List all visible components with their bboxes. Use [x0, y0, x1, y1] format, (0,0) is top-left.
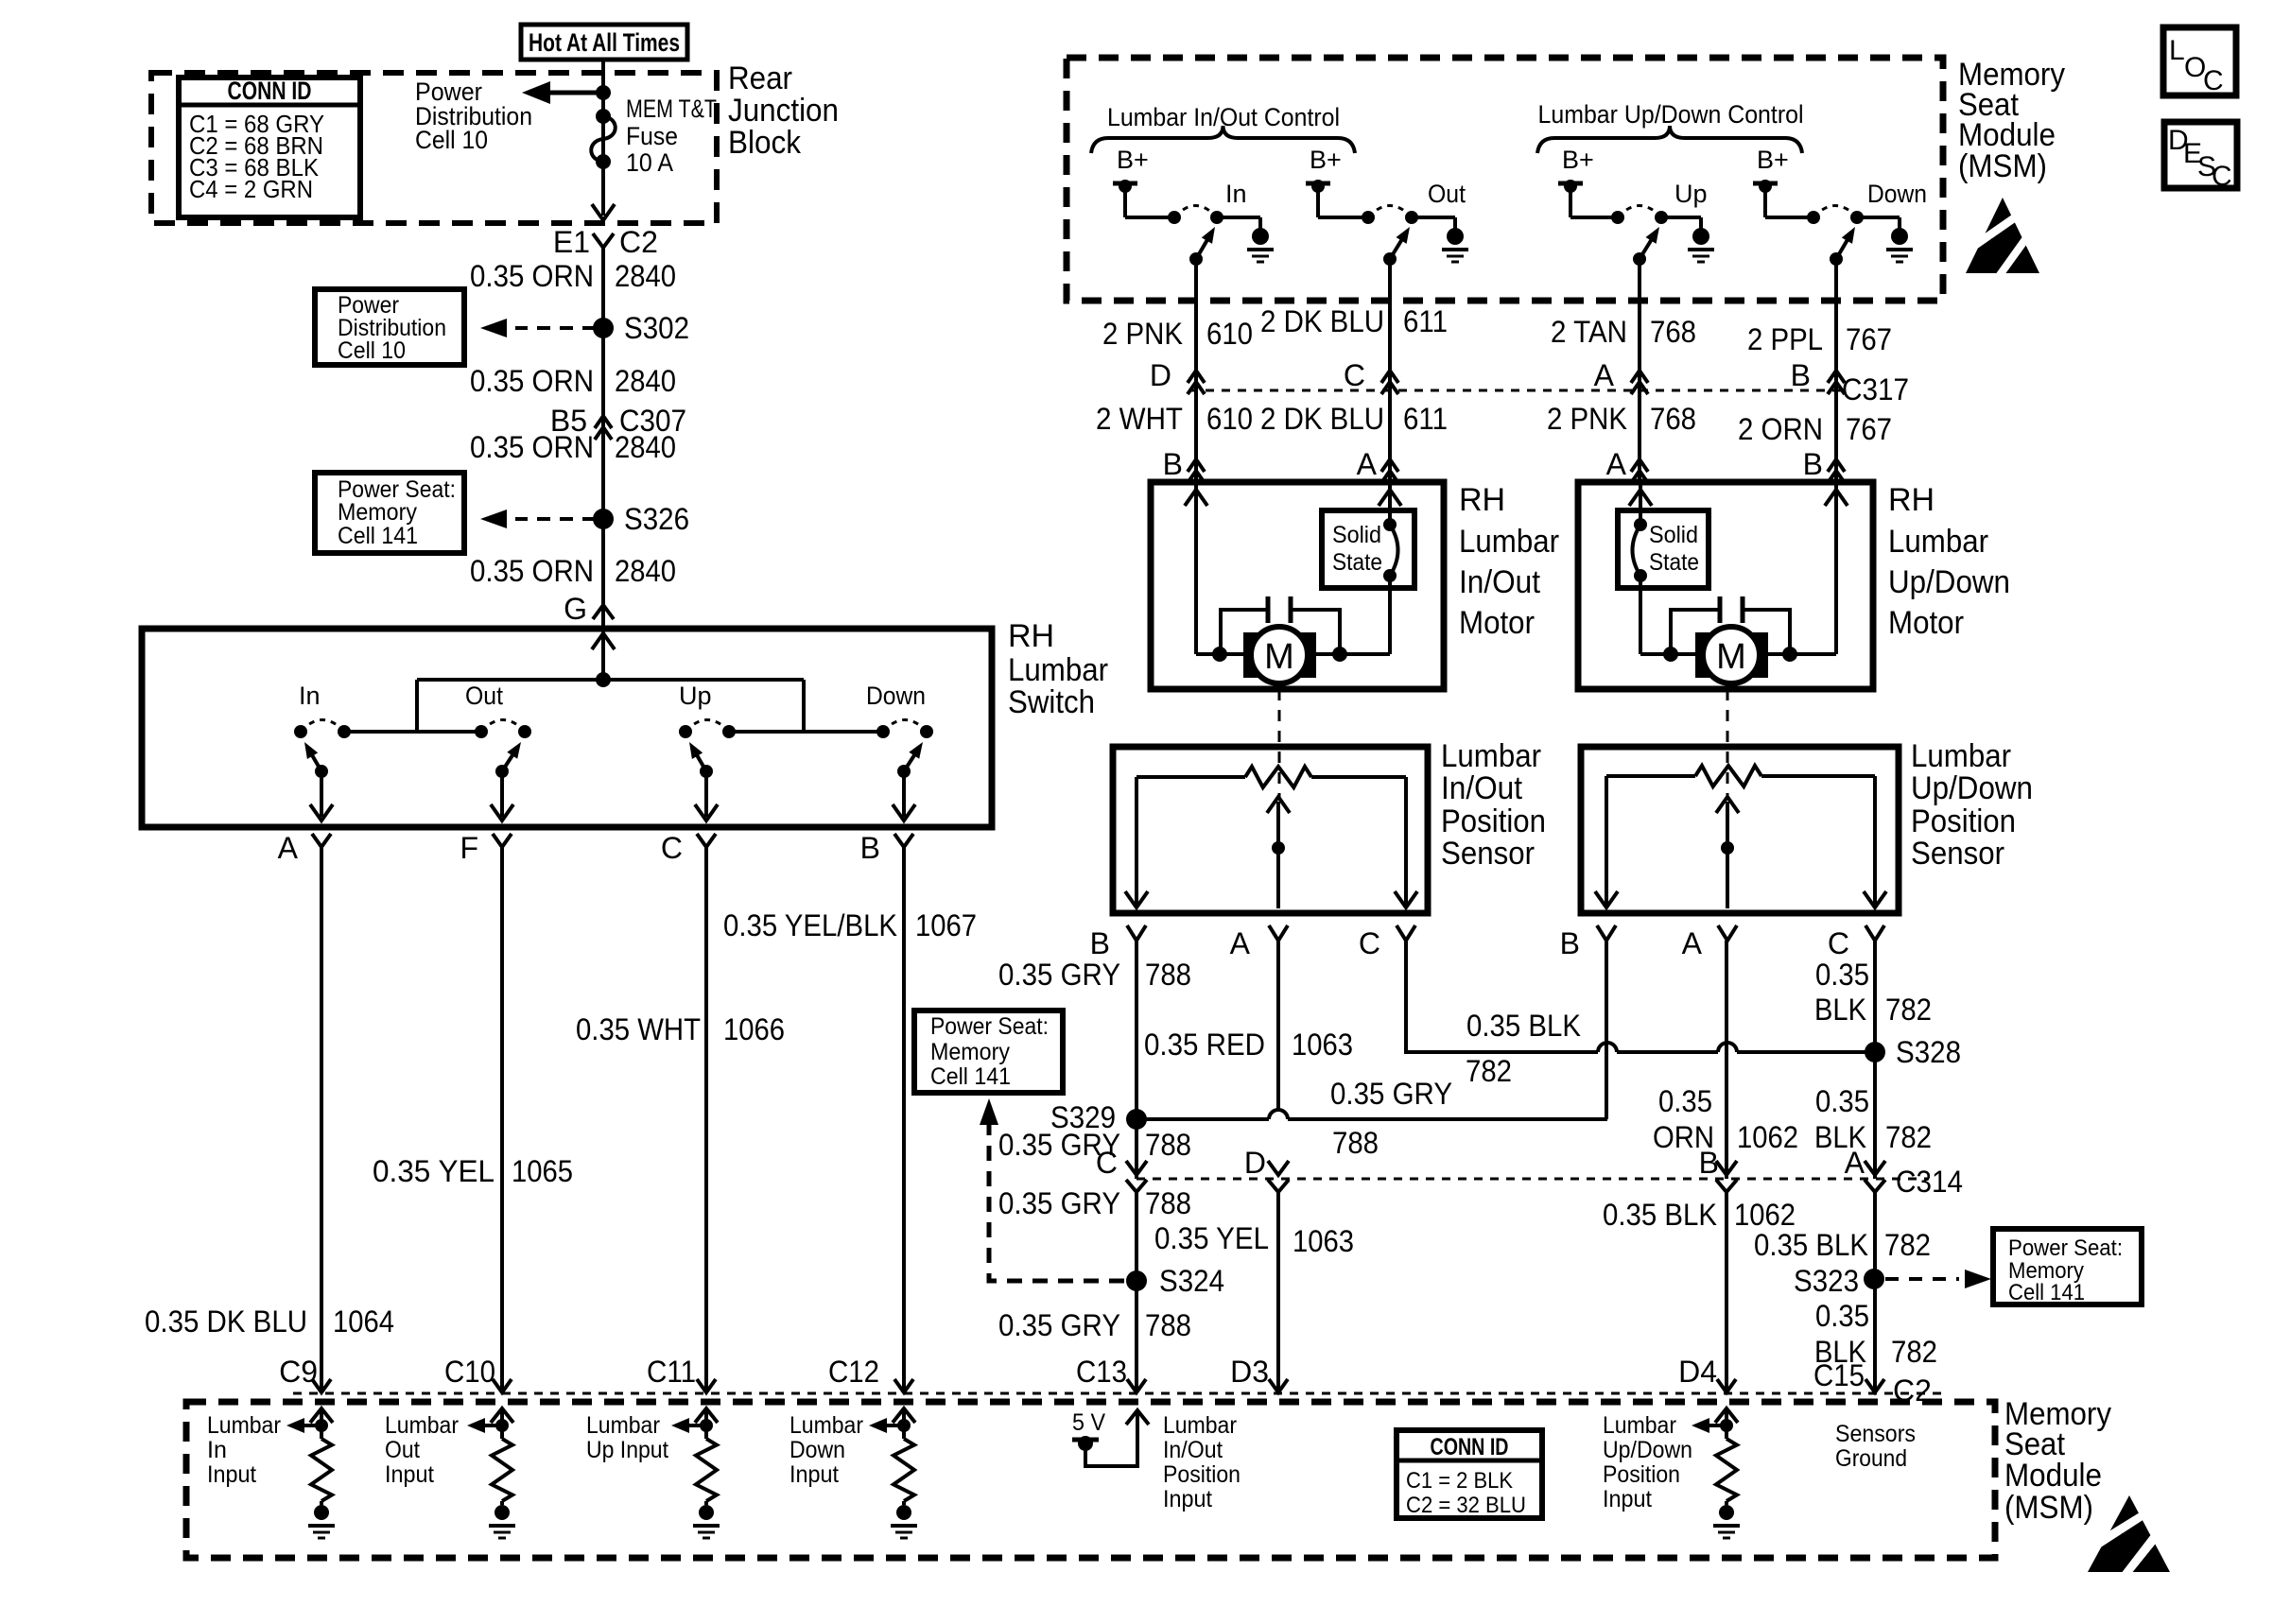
svg-text:0.35 ORN: 0.35 ORN — [470, 554, 594, 588]
svg-text:788: 788 — [1145, 1128, 1191, 1162]
svg-text:A: A — [1845, 1146, 1865, 1180]
svg-text:Down: Down — [866, 682, 926, 710]
svg-text:Junction: Junction — [728, 93, 839, 129]
svg-text:0.35 DK BLU: 0.35 DK BLU — [145, 1304, 307, 1339]
svg-text:C9: C9 — [279, 1355, 318, 1389]
svg-text:D: D — [1150, 358, 1171, 392]
svg-text:B: B — [1163, 447, 1183, 481]
svg-text:788: 788 — [1332, 1126, 1379, 1160]
svg-text:2840: 2840 — [615, 554, 676, 588]
svg-text:In/Out: In/Out — [1441, 770, 1523, 806]
svg-text:C: C — [1344, 358, 1365, 392]
svg-text:B: B — [1090, 926, 1110, 960]
svg-text:RH: RH — [1008, 618, 1054, 654]
svg-text:Memory: Memory — [930, 1039, 1010, 1065]
svg-text:Lumbar Up/Down Control: Lumbar Up/Down Control — [1538, 100, 1804, 129]
svg-text:768: 768 — [1650, 402, 1696, 436]
svg-text:Cell 10: Cell 10 — [415, 126, 488, 154]
svg-text:0.35 ORN: 0.35 ORN — [470, 364, 594, 398]
svg-text:B+: B+ — [1310, 146, 1342, 174]
svg-text:Sensor: Sensor — [1911, 836, 2004, 872]
svg-text:RH: RH — [1888, 482, 1935, 518]
svg-text:Solid: Solid — [1332, 522, 1381, 548]
svg-text:0.35 YEL/BLK: 0.35 YEL/BLK — [723, 908, 897, 942]
svg-text:1064: 1064 — [333, 1304, 394, 1339]
svg-text:C: C — [1359, 926, 1380, 960]
svg-text:S324: S324 — [1159, 1264, 1224, 1298]
svg-text:767: 767 — [1846, 322, 1892, 356]
svg-text:2 PNK: 2 PNK — [1102, 317, 1183, 351]
svg-text:Input: Input — [1163, 1486, 1212, 1512]
svg-text:1066: 1066 — [723, 1012, 785, 1046]
svg-text:C: C — [2203, 65, 2224, 96]
svg-text:A: A — [1230, 926, 1251, 960]
svg-text:B+: B+ — [1562, 146, 1594, 174]
svg-text:B+: B+ — [1117, 146, 1149, 174]
svg-text:Solid: Solid — [1649, 522, 1698, 548]
svg-text:1065: 1065 — [512, 1154, 573, 1188]
svg-text:611: 611 — [1403, 402, 1448, 436]
svg-text:In: In — [207, 1437, 227, 1463]
svg-text:Lumbar: Lumbar — [207, 1412, 281, 1439]
svg-text:Up: Up — [1674, 180, 1708, 208]
svg-text:2 DK BLU: 2 DK BLU — [1260, 304, 1384, 338]
svg-text:782: 782 — [1885, 993, 1932, 1027]
svg-text:Out: Out — [385, 1437, 420, 1463]
svg-text:2840: 2840 — [615, 430, 676, 464]
svg-text:610: 610 — [1206, 402, 1253, 436]
svg-text:0.35 GRY: 0.35 GRY — [998, 958, 1120, 992]
svg-text:Lumbar: Lumbar — [1441, 738, 1541, 774]
svg-text:1062: 1062 — [1737, 1120, 1798, 1154]
svg-text:10 A: 10 A — [626, 148, 673, 177]
svg-text:Input: Input — [385, 1461, 434, 1488]
svg-text:In: In — [1225, 180, 1247, 208]
svg-text:0.35 GRY: 0.35 GRY — [998, 1308, 1120, 1342]
svg-text:0.35 WHT: 0.35 WHT — [576, 1012, 701, 1046]
svg-text:2 PPL: 2 PPL — [1747, 322, 1823, 356]
svg-text:Up Input: Up Input — [586, 1437, 668, 1463]
svg-text:B: B — [860, 831, 880, 865]
svg-text:2 PNK: 2 PNK — [1547, 402, 1627, 436]
svg-text:C2: C2 — [619, 225, 658, 259]
svg-text:Cell 141: Cell 141 — [338, 523, 418, 549]
svg-text:Input: Input — [207, 1461, 256, 1488]
svg-text:Down: Down — [789, 1437, 845, 1463]
svg-text:Lumbar: Lumbar — [385, 1412, 459, 1439]
svg-text:0.35: 0.35 — [1658, 1084, 1712, 1118]
svg-text:Down: Down — [1867, 180, 1927, 208]
svg-text:782: 782 — [1891, 1335, 1937, 1369]
svg-text:Hot At All Times: Hot At All Times — [529, 28, 680, 57]
svg-text:0.35 BLK: 0.35 BLK — [1466, 1009, 1581, 1043]
svg-text:2 DK BLU: 2 DK BLU — [1260, 402, 1384, 436]
svg-text:L: L — [2169, 35, 2185, 66]
svg-text:Input: Input — [1603, 1486, 1652, 1512]
svg-text:C4 = 2 GRN: C4 = 2 GRN — [189, 175, 313, 203]
svg-text:D4: D4 — [1678, 1355, 1717, 1389]
svg-text:Up/Down: Up/Down — [1603, 1437, 1692, 1463]
svg-text:Up/Down: Up/Down — [1888, 564, 2010, 600]
svg-text:Lumbar: Lumbar — [1888, 524, 1988, 560]
svg-text:B: B — [1560, 926, 1580, 960]
svg-text:C314: C314 — [1896, 1165, 1963, 1199]
svg-text:C1 = 2 BLK: C1 = 2 BLK — [1406, 1468, 1513, 1494]
svg-text:C11: C11 — [647, 1355, 696, 1389]
svg-text:C12: C12 — [828, 1355, 879, 1389]
svg-text:0.35 YEL: 0.35 YEL — [373, 1154, 495, 1188]
svg-text:Power Seat:: Power Seat: — [2008, 1235, 2123, 1261]
svg-text:Position: Position — [1603, 1461, 1680, 1488]
svg-text:0.35 ORN: 0.35 ORN — [470, 430, 594, 464]
svg-text:F: F — [460, 831, 478, 865]
svg-text:0.35 GRY: 0.35 GRY — [998, 1186, 1120, 1220]
svg-text:0.35 RED: 0.35 RED — [1144, 1028, 1265, 1062]
svg-text:M: M — [1716, 637, 1746, 677]
svg-text:0.35: 0.35 — [1815, 1299, 1869, 1333]
svg-text:Position: Position — [1911, 803, 2016, 839]
svg-text:Position: Position — [1441, 803, 1546, 839]
svg-text:(MSM): (MSM) — [1958, 148, 2047, 184]
svg-text:S323: S323 — [1794, 1264, 1859, 1298]
svg-text:C317: C317 — [1842, 372, 1909, 406]
svg-text:0.35 YEL: 0.35 YEL — [1154, 1221, 1269, 1255]
svg-text:A: A — [278, 831, 299, 865]
svg-text:BLK: BLK — [1814, 993, 1866, 1027]
svg-text:B: B — [1803, 447, 1823, 481]
svg-text:Switch: Switch — [1008, 684, 1095, 720]
svg-text:611: 611 — [1403, 304, 1448, 338]
svg-text:Block: Block — [728, 125, 802, 161]
svg-text:Lumbar: Lumbar — [586, 1412, 660, 1439]
svg-text:767: 767 — [1846, 412, 1892, 446]
svg-text:2 TAN: 2 TAN — [1551, 315, 1627, 349]
svg-text:E1: E1 — [553, 225, 590, 259]
svg-text:In: In — [299, 682, 321, 710]
svg-text:G: G — [564, 592, 587, 626]
svg-text:D3: D3 — [1230, 1355, 1269, 1389]
svg-text:0.35: 0.35 — [1815, 1084, 1869, 1118]
svg-text:Ground: Ground — [1835, 1445, 1907, 1472]
svg-text:1063: 1063 — [1292, 1028, 1353, 1062]
svg-text:782: 782 — [1466, 1054, 1512, 1088]
svg-text:M: M — [1264, 637, 1294, 677]
svg-text:CONN ID: CONN ID — [1431, 1434, 1509, 1460]
svg-text:788: 788 — [1145, 1186, 1191, 1220]
svg-text:Fuse: Fuse — [626, 122, 678, 150]
svg-text:Lumbar: Lumbar — [1603, 1412, 1676, 1439]
svg-text:610: 610 — [1206, 317, 1253, 351]
svg-text:C2 = 32 BLU: C2 = 32 BLU — [1406, 1493, 1526, 1518]
svg-text:Lumbar: Lumbar — [789, 1412, 863, 1439]
svg-text:State: State — [1332, 549, 1382, 576]
svg-text:Out: Out — [465, 682, 503, 710]
svg-text:B: B — [1699, 1146, 1719, 1180]
svg-text:Out: Out — [1428, 180, 1466, 208]
svg-text:Lumbar: Lumbar — [1459, 524, 1559, 560]
svg-text:A: A — [1357, 447, 1378, 481]
svg-text:2 WHT: 2 WHT — [1096, 402, 1183, 436]
svg-text:1063: 1063 — [1293, 1224, 1354, 1258]
svg-text:2840: 2840 — [615, 259, 676, 293]
svg-text:S328: S328 — [1896, 1035, 1961, 1069]
svg-text:1067: 1067 — [915, 908, 977, 942]
svg-text:RH: RH — [1459, 482, 1505, 518]
svg-text:Module: Module — [2004, 1458, 2102, 1494]
svg-text:2840: 2840 — [615, 364, 676, 398]
svg-text:Rear: Rear — [728, 60, 792, 96]
svg-text:Memory: Memory — [338, 499, 417, 526]
svg-text:D: D — [1244, 1146, 1266, 1180]
svg-text:Cell 141: Cell 141 — [2008, 1280, 2085, 1305]
svg-text:782: 782 — [1885, 1120, 1932, 1154]
svg-text:C: C — [2212, 161, 2232, 192]
svg-text:C10: C10 — [444, 1355, 495, 1389]
svg-text:Sensors: Sensors — [1835, 1421, 1916, 1447]
svg-text:Cell 141: Cell 141 — [930, 1063, 1011, 1090]
svg-text:Input: Input — [789, 1461, 839, 1488]
svg-text:0.35 BLK: 0.35 BLK — [1603, 1198, 1717, 1232]
svg-text:788: 788 — [1145, 1308, 1191, 1342]
svg-text:1062: 1062 — [1734, 1198, 1796, 1232]
svg-text:State: State — [1649, 549, 1699, 576]
svg-text:Motor: Motor — [1888, 605, 1964, 641]
svg-text:B+: B+ — [1757, 146, 1789, 174]
svg-text:MEM T&T: MEM T&T — [626, 95, 717, 123]
svg-text:B: B — [1791, 358, 1811, 392]
svg-text:Position: Position — [1163, 1461, 1241, 1488]
svg-text:Motor: Motor — [1459, 605, 1535, 641]
svg-text:0.35 GRY: 0.35 GRY — [1330, 1077, 1452, 1111]
svg-text:768: 768 — [1650, 315, 1696, 349]
svg-text:CONN ID: CONN ID — [228, 77, 312, 105]
svg-text:A: A — [1594, 358, 1615, 392]
svg-text:C: C — [1096, 1146, 1118, 1180]
svg-text:Lumbar: Lumbar — [1163, 1412, 1237, 1439]
svg-text:A: A — [1606, 447, 1627, 481]
svg-text:Power Seat:: Power Seat: — [930, 1013, 1049, 1040]
svg-text:2 ORN: 2 ORN — [1738, 412, 1823, 446]
svg-text:In/Out: In/Out — [1459, 564, 1541, 600]
svg-text:(MSM): (MSM) — [2004, 1490, 2093, 1526]
svg-text:A: A — [1682, 926, 1703, 960]
svg-text:C15: C15 — [1813, 1358, 1865, 1392]
svg-text:C13: C13 — [1076, 1355, 1127, 1389]
svg-text:C: C — [661, 831, 683, 865]
svg-text:Up: Up — [679, 682, 712, 710]
svg-text:Cell 10: Cell 10 — [338, 337, 406, 364]
svg-text:0.35: 0.35 — [1815, 958, 1869, 992]
svg-text:S326: S326 — [624, 502, 689, 536]
svg-text:5 V: 5 V — [1072, 1409, 1105, 1436]
svg-text:782: 782 — [1884, 1228, 1931, 1262]
svg-text:0.35 BLK: 0.35 BLK — [1754, 1228, 1868, 1262]
svg-text:S302: S302 — [624, 311, 689, 345]
svg-text:Lumbar: Lumbar — [1008, 652, 1108, 688]
svg-text:Up/Down: Up/Down — [1911, 770, 2033, 806]
svg-text:In/Out: In/Out — [1163, 1437, 1223, 1463]
svg-text:Sensor: Sensor — [1441, 836, 1535, 872]
svg-text:788: 788 — [1145, 958, 1191, 992]
svg-text:0.35 ORN: 0.35 ORN — [470, 259, 594, 293]
svg-text:C: C — [1828, 926, 1849, 960]
svg-text:Lumbar: Lumbar — [1911, 738, 2011, 774]
